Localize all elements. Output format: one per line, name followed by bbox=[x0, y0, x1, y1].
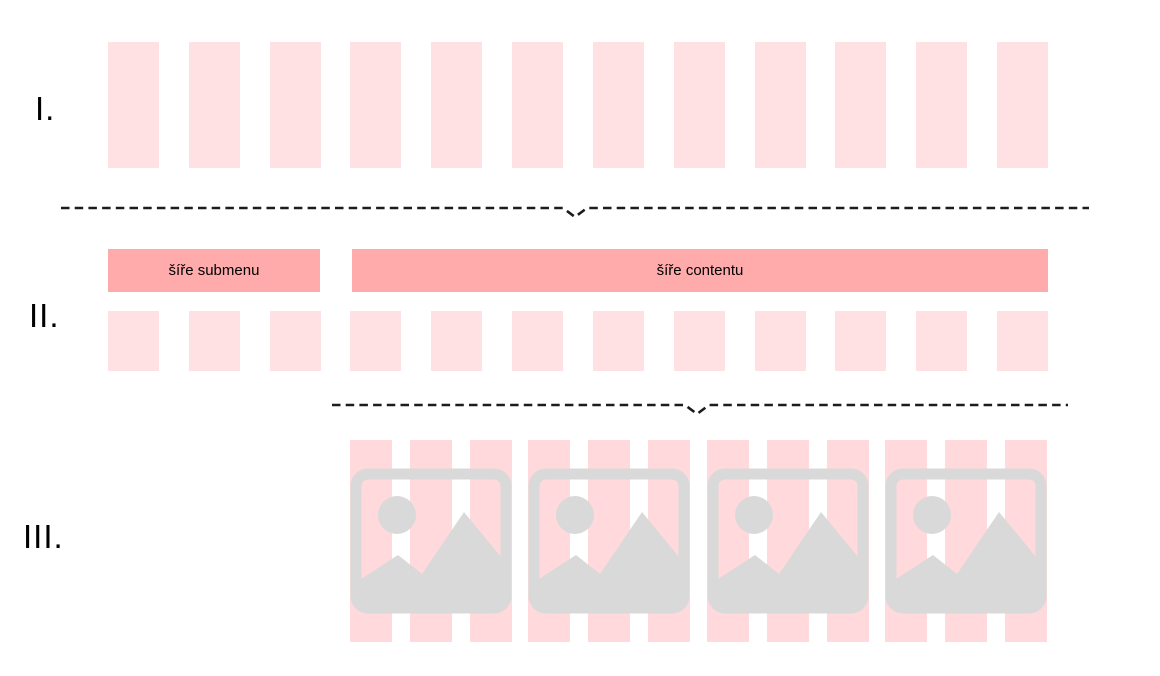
image-tile bbox=[707, 440, 869, 642]
separator-dashed-line-1 bbox=[61, 198, 1089, 222]
grid-column bbox=[431, 42, 482, 168]
grid-column bbox=[189, 42, 240, 168]
grid-column bbox=[835, 42, 886, 168]
section-one-label: I. bbox=[35, 92, 55, 125]
grid-layout-diagram: I. II. šíře submenu šíře contentu III. bbox=[0, 0, 1160, 676]
grid-column bbox=[835, 311, 886, 371]
full-width-grid-columns-row bbox=[108, 42, 1048, 168]
image-placeholder-icon bbox=[350, 468, 512, 614]
image-tile bbox=[528, 440, 690, 642]
grid-column bbox=[593, 42, 644, 168]
grid-column bbox=[350, 311, 401, 371]
image-tile bbox=[350, 440, 512, 642]
grid-column bbox=[108, 311, 159, 371]
grid-column bbox=[755, 311, 806, 371]
separator-dashed-line-2 bbox=[332, 395, 1068, 419]
grid-column bbox=[997, 42, 1048, 168]
grid-column bbox=[189, 311, 240, 371]
grid-column bbox=[674, 42, 725, 168]
content-width-bar: šíře contentu bbox=[352, 249, 1048, 292]
grid-column bbox=[431, 311, 482, 371]
grid-column bbox=[916, 42, 967, 168]
grid-column bbox=[674, 311, 725, 371]
short-grid-columns-row bbox=[108, 311, 1048, 371]
image-placeholder-icon bbox=[528, 468, 690, 614]
section-two-label: II. bbox=[29, 299, 60, 332]
grid-column bbox=[512, 311, 563, 371]
image-tiles-row bbox=[350, 440, 1047, 642]
submenu-width-bar: šíře submenu bbox=[108, 249, 320, 292]
section-three-label: III. bbox=[23, 520, 64, 553]
grid-column bbox=[997, 311, 1048, 371]
grid-column bbox=[350, 42, 401, 168]
grid-column bbox=[270, 42, 321, 168]
grid-column bbox=[755, 42, 806, 168]
grid-column bbox=[593, 311, 644, 371]
grid-column bbox=[916, 311, 967, 371]
image-placeholder-icon bbox=[707, 468, 869, 614]
grid-column bbox=[270, 311, 321, 371]
image-tile bbox=[885, 440, 1047, 642]
grid-column bbox=[108, 42, 159, 168]
grid-column bbox=[512, 42, 563, 168]
image-placeholder-icon bbox=[885, 468, 1047, 614]
